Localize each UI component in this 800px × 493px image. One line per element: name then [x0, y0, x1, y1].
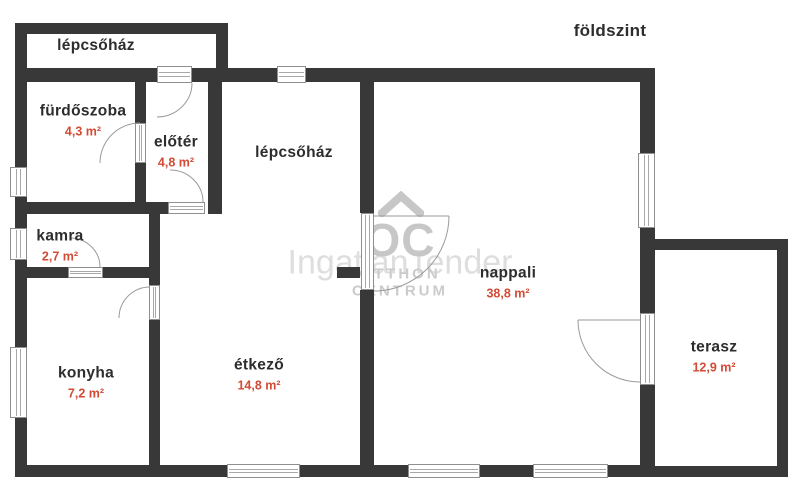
wall — [149, 320, 160, 466]
room-name: terasz — [691, 339, 738, 357]
watermark-roof-icon — [378, 191, 424, 217]
door-arc — [374, 216, 449, 291]
floor-title: földszint — [574, 21, 647, 41]
window — [10, 167, 27, 197]
room-name: nappali — [480, 265, 536, 283]
door-frame — [157, 66, 192, 83]
wall — [777, 239, 788, 477]
wall — [480, 465, 533, 477]
door-arc — [578, 320, 640, 382]
room-area: 14,8 m² — [234, 379, 284, 394]
window — [638, 153, 655, 228]
watermark-text: IngatlanTender — [288, 244, 513, 283]
room-label-lepcsohaz-annex: lépcsőház — [57, 37, 135, 55]
room-area: 2,7 m² — [36, 250, 83, 265]
room-area: 7,2 m² — [58, 387, 114, 402]
door-frame — [640, 313, 655, 385]
room-label-etkezo: étkező 14,8 m² — [234, 357, 284, 394]
room-label-terasz: terasz 12,9 m² — [691, 339, 738, 376]
room-name: kamra — [36, 228, 83, 246]
wall — [103, 267, 149, 278]
room-label-lepcsohaz: lépcsőház — [255, 144, 333, 162]
wall — [15, 68, 27, 167]
wall — [192, 68, 277, 82]
room-label-konyha: konyha 7,2 m² — [58, 365, 114, 402]
wall — [25, 267, 68, 278]
door-frame — [68, 267, 103, 278]
wall — [149, 202, 160, 285]
door-frame — [135, 123, 146, 163]
room-label-nappali: nappali 38,8 m² — [480, 265, 536, 302]
wall — [25, 202, 168, 214]
window — [227, 464, 300, 478]
wall — [640, 228, 655, 313]
door-frame — [149, 285, 160, 320]
room-name: konyha — [58, 365, 114, 383]
window — [533, 464, 608, 478]
wall — [300, 465, 408, 477]
room-name: étkező — [234, 357, 284, 375]
window — [10, 228, 27, 260]
room-area: 4,3 m² — [40, 125, 127, 140]
room-name: lépcsőház — [57, 37, 135, 55]
room-label-eloter: előtér 4,8 m² — [154, 134, 198, 171]
wall — [216, 23, 228, 70]
room-name: lépcsőház — [255, 144, 333, 162]
wall — [360, 82, 374, 213]
wall — [208, 82, 222, 214]
window — [408, 464, 480, 478]
watermark-logo-monogram: OC — [365, 213, 436, 267]
window — [10, 347, 27, 418]
wall — [15, 465, 227, 477]
room-area: 4,8 m² — [154, 156, 198, 171]
door-arc — [170, 170, 203, 202]
room-name: fürdőszoba — [40, 103, 127, 121]
room-label-furdoszoba: fürdőszoba 4,3 m² — [40, 103, 127, 140]
wall — [135, 163, 146, 204]
wall — [15, 68, 157, 82]
wall — [360, 290, 374, 466]
wall — [306, 68, 655, 82]
wall — [655, 239, 788, 250]
door-frame — [168, 202, 205, 214]
door-arc — [157, 83, 192, 117]
wall — [135, 82, 146, 123]
room-area: 12,9 m² — [691, 361, 738, 376]
room-name: előtér — [154, 134, 198, 152]
window — [277, 66, 306, 83]
door-frame — [361, 213, 374, 290]
wall — [640, 68, 655, 153]
wall — [15, 23, 27, 70]
room-label-kamra: kamra 2,7 m² — [36, 228, 83, 265]
wall — [640, 385, 655, 477]
wall — [15, 23, 228, 34]
wall — [655, 466, 788, 477]
floor-plan: IngatlanTender OC OTTHON CENTRUM — [0, 0, 800, 493]
door-arc — [119, 287, 150, 318]
wall — [337, 267, 360, 278]
room-area: 38,8 m² — [480, 287, 536, 302]
